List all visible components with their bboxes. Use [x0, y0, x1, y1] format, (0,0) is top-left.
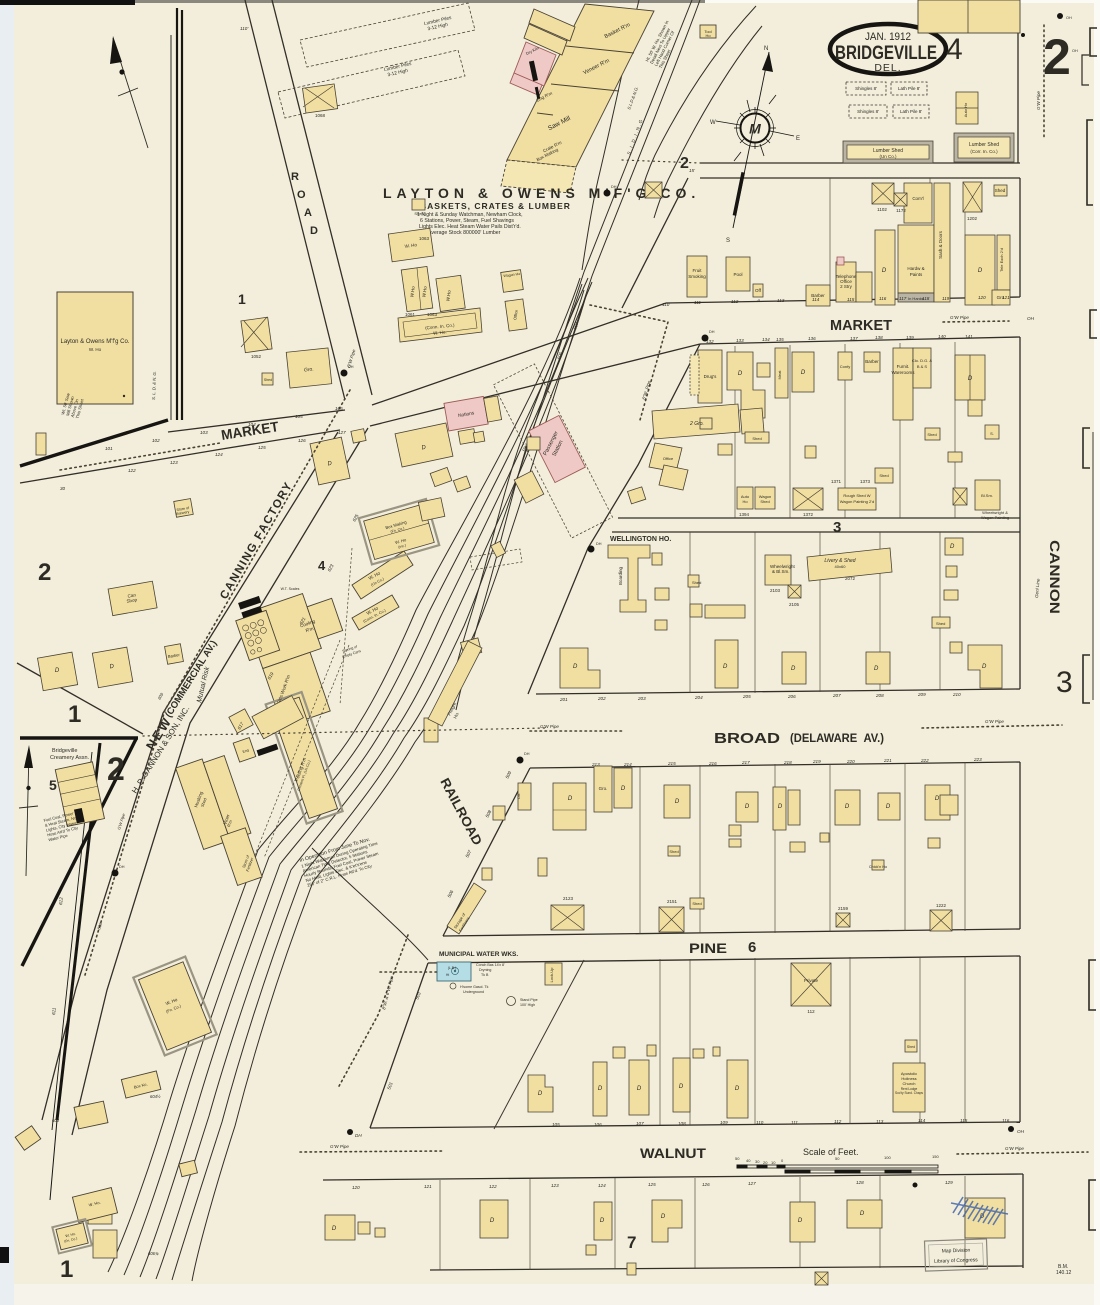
svg-text:107: 107	[636, 1121, 644, 1126]
svg-text:(Un Co.): (Un Co.)	[879, 154, 897, 159]
svg-text:138: 138	[875, 335, 883, 340]
svg-text:136: 136	[808, 336, 816, 341]
svg-text:BROAD: BROAD	[714, 730, 780, 747]
svg-text:Lath Pile 8': Lath Pile 8'	[900, 109, 922, 114]
svg-text:124: 124	[215, 452, 223, 457]
svg-text:D: D	[791, 666, 796, 672]
svg-text:Sash & Doors: Sash & Doors	[938, 230, 943, 259]
svg-text:D: D	[723, 664, 728, 670]
svg-text:105: 105	[295, 414, 303, 419]
svg-text:BRIDGEVILLE: BRIDGEVILLE	[835, 43, 937, 64]
svg-text:Shingles 8': Shingles 8'	[855, 86, 877, 91]
svg-text:15': 15'	[689, 168, 695, 173]
svg-text:OH: OH	[1017, 1129, 1025, 1134]
svg-text:4: 4	[318, 558, 326, 573]
svg-text:Hardw &: Hardw &	[907, 266, 924, 271]
svg-text:2159: 2159	[838, 906, 849, 911]
svg-text:40x60: 40x60	[835, 564, 847, 569]
svg-text:116: 116	[879, 296, 887, 301]
svg-text:BASKETS, CRATES & LUMBER: BASKETS, CRATES & LUMBER	[420, 201, 571, 211]
svg-text:D: D	[978, 268, 983, 274]
svg-text:6: 6	[748, 939, 756, 956]
svg-text:112: 112	[807, 1009, 815, 1014]
svg-text:1222: 1222	[936, 903, 947, 908]
svg-text:Lath Pile 8': Lath Pile 8'	[898, 86, 920, 91]
svg-text:202: 202	[597, 696, 606, 701]
svg-text:220: 220	[846, 759, 855, 764]
svg-text:Wagon Painting: Wagon Painting	[981, 515, 1009, 520]
svg-text:128: 128	[856, 1180, 864, 1185]
svg-text:132: 132	[706, 339, 714, 344]
svg-text:DH: DH	[348, 365, 354, 369]
svg-text:M: M	[749, 121, 761, 137]
svg-text:A: A	[304, 207, 312, 219]
svg-text:2 Gro.: 2 Gro.	[689, 421, 704, 427]
svg-text:Rough Shed W: Rough Shed W	[843, 493, 870, 498]
svg-text:123: 123	[551, 1183, 559, 1188]
svg-text:115: 115	[847, 297, 855, 302]
svg-text:D: D	[600, 1218, 605, 1224]
svg-text:OH: OH	[1072, 49, 1078, 53]
svg-text:S.: S.	[990, 431, 994, 436]
svg-text:G'W Pipe: G'W Pipe	[950, 315, 969, 320]
svg-text:217: 217	[741, 760, 750, 765]
svg-text:D: D	[968, 376, 973, 382]
svg-text:Shed: Shed	[669, 849, 678, 854]
svg-text:OH: OH	[1027, 316, 1035, 321]
svg-text:D: D	[568, 796, 573, 802]
svg-text:207: 207	[832, 693, 841, 698]
svg-text:109: 109	[720, 1120, 728, 1125]
svg-text:105: 105	[552, 1122, 560, 1127]
svg-text:D: D	[745, 804, 750, 810]
svg-text:Clo. D.G. &: Clo. D.G. &	[912, 358, 933, 363]
svg-text:125: 125	[258, 445, 266, 450]
svg-text:126: 126	[298, 438, 306, 443]
svg-text:S. L. D. & N. G.: S. L. D. & N. G.	[151, 371, 157, 400]
svg-text:115: 115	[960, 1118, 968, 1123]
svg-text:D: D	[637, 1086, 642, 1092]
svg-text:W. Ho: W. Ho	[89, 347, 102, 352]
svg-text:10: 10	[771, 1160, 776, 1165]
svg-text:WELLINGTON HO.: WELLINGTON HO.	[610, 536, 671, 543]
svg-text:Layton & Owens M'f'g Co.: Layton & Owens M'f'g Co.	[61, 339, 130, 345]
svg-text:120: 120	[978, 295, 986, 300]
svg-text:133: 133	[736, 338, 744, 343]
svg-text:S: S	[726, 238, 730, 244]
svg-text:Confy: Confy	[840, 364, 850, 369]
svg-text:Shingles 8': Shingles 8'	[857, 109, 879, 114]
svg-text:139: 139	[906, 335, 914, 340]
svg-text:204: 204	[694, 695, 703, 700]
svg-text:D: D	[845, 804, 850, 810]
svg-text:Meat: Meat	[777, 370, 782, 380]
svg-text:Conch Bas 14'x 8': Conch Bas 14'x 8'	[476, 963, 505, 967]
svg-text:OH: OH	[1066, 16, 1072, 20]
svg-text:Shed: Shed	[907, 1045, 915, 1049]
svg-text:3: 3	[1056, 666, 1073, 699]
svg-text:1371: 1371	[831, 479, 842, 484]
svg-text:30: 30	[60, 486, 66, 491]
svg-text:Stand Pipe: Stand Pipe	[520, 998, 538, 1002]
svg-text:1068: 1068	[315, 113, 326, 118]
svg-text:140: 140	[938, 334, 946, 339]
svg-text:2103: 2103	[770, 588, 781, 593]
svg-text:135: 135	[776, 337, 784, 342]
svg-text:1063: 1063	[419, 236, 430, 241]
svg-text:1202: 1202	[967, 216, 978, 221]
svg-text:1063: 1063	[427, 312, 438, 317]
svg-text:D: D	[950, 544, 955, 550]
svg-text:D: D	[490, 1218, 495, 1224]
svg-text:G'W Pipe: G'W Pipe	[1036, 91, 1041, 110]
svg-text:Church: Church	[903, 1081, 916, 1086]
svg-text:121: 121	[424, 1184, 432, 1189]
svg-text:126: 126	[702, 1182, 710, 1187]
svg-text:110: 110	[756, 1120, 764, 1125]
svg-text:Com'l: Com'l	[912, 196, 923, 201]
svg-text:Bl.Sm.: Bl.Sm.	[981, 493, 993, 498]
svg-text:Ho: Ho	[742, 499, 748, 504]
svg-text:Underground: Underground	[463, 990, 484, 994]
svg-text:112: 112	[834, 1119, 842, 1124]
svg-text:Gro.: Gro.	[599, 786, 608, 791]
svg-text:D: D	[798, 1218, 803, 1224]
svg-text:222: 222	[920, 758, 929, 763]
svg-text:219: 219	[812, 759, 821, 764]
svg-text:106: 106	[594, 1122, 602, 1127]
svg-text:121: 121	[1002, 295, 1010, 300]
svg-text:1373: 1373	[860, 479, 871, 484]
svg-text:Shed: Shed	[692, 580, 701, 585]
svg-text:D: D	[55, 668, 60, 674]
svg-text:102: 102	[152, 438, 160, 443]
svg-text:D: D	[801, 370, 806, 376]
svg-text:H'some Gasol. Tk: H'some Gasol. Tk	[460, 985, 489, 989]
svg-text:CANNON: CANNON	[1047, 540, 1063, 614]
svg-text:218: 218	[783, 760, 792, 765]
svg-text:Shed: Shed	[264, 378, 272, 382]
svg-text:205: 205	[742, 694, 751, 699]
svg-text:Tk B: Tk B	[481, 973, 489, 977]
svg-text:D: D	[310, 225, 318, 237]
svg-text:Creamery Assn.: Creamery Assn.	[50, 755, 90, 761]
svg-text:D: D	[679, 1084, 684, 1090]
svg-text:Shed: Shed	[936, 621, 945, 626]
svg-text:116: 116	[1002, 1118, 1010, 1123]
svg-text:Shed: Shed	[995, 188, 1006, 193]
svg-text:2: 2	[38, 559, 51, 586]
svg-text:101: 101	[105, 446, 113, 451]
svg-text:117: 117	[899, 296, 907, 301]
svg-text:50: 50	[735, 1156, 740, 1161]
svg-text:G'W Pipe: G'W Pipe	[1005, 1146, 1024, 1151]
svg-text:1372: 1372	[803, 512, 814, 517]
svg-text:D: D	[735, 1086, 740, 1092]
svg-text:(Corr. In. Co.): (Corr. In. Co.)	[970, 149, 998, 154]
svg-text:122: 122	[128, 468, 136, 473]
svg-text:100: 100	[884, 1155, 891, 1160]
svg-text:MUNICIPAL WATER WKS.: MUNICIPAL WATER WKS.	[439, 951, 518, 958]
svg-text:Furnit.: Furnit.	[897, 364, 910, 369]
svg-text:PINE: PINE	[689, 940, 727, 956]
svg-text:124: 124	[598, 1183, 606, 1188]
svg-text:Soc'ty Sund. Chaps: Soc'ty Sund. Chaps	[895, 1091, 923, 1095]
svg-text:604½: 604½	[150, 1094, 161, 1099]
svg-text:50: 50	[835, 1156, 840, 1161]
svg-text:Ho: Ho	[705, 33, 711, 38]
svg-text:Off: Off	[755, 288, 762, 293]
svg-text:2105: 2105	[789, 602, 800, 607]
svg-text:141: 141	[965, 334, 973, 339]
svg-text:W.T. Scales: W.T. Scales	[281, 587, 300, 591]
svg-text:600: 600	[52, 1118, 60, 1123]
svg-text:111: 111	[791, 1120, 798, 1125]
svg-text:D: D	[332, 1226, 337, 1232]
svg-text:3: 3	[833, 519, 841, 536]
svg-text:40: 40	[746, 1158, 751, 1163]
svg-text:2 Stry: 2 Stry	[840, 284, 853, 289]
svg-text:103: 103	[200, 430, 208, 435]
svg-text:108: 108	[678, 1121, 686, 1126]
svg-text:206: 206	[787, 694, 796, 699]
svg-text:140.12: 140.12	[1056, 1270, 1072, 1276]
svg-text:D: D	[573, 664, 578, 670]
svg-text:DH: DH	[119, 865, 125, 869]
svg-text:Barber: Barber	[865, 359, 879, 364]
svg-text:612: 612	[58, 897, 64, 906]
svg-text:DH: DH	[355, 1133, 362, 1138]
svg-text:201: 201	[559, 697, 568, 702]
svg-text:127: 127	[338, 430, 346, 435]
svg-text:111: 111	[694, 300, 701, 305]
svg-text:Lock-Up: Lock-Up	[549, 967, 554, 983]
svg-text:Bridgeville: Bridgeville	[52, 748, 77, 754]
svg-text:Scale of Feet.: Scale of Feet.	[803, 1147, 859, 1157]
svg-text:(L.B.): (L.B.)	[448, 966, 457, 970]
svg-text:D: D	[738, 371, 743, 377]
svg-text:MARKET: MARKET	[830, 318, 892, 334]
svg-text:D: D	[935, 796, 940, 802]
svg-text:Paints: Paints	[910, 272, 923, 277]
svg-text:DEL.: DEL.	[874, 62, 901, 74]
svg-text:221: 221	[883, 758, 892, 763]
svg-text:Shed: Shed	[752, 436, 761, 441]
svg-text:Shed: Shed	[927, 432, 936, 437]
svg-text:104: 104	[248, 422, 256, 427]
svg-text:110': 110'	[240, 26, 248, 31]
svg-text:(DELAWARE AV.): (DELAWARE AV.)	[790, 733, 884, 745]
svg-text:D: D	[661, 1214, 666, 1220]
svg-text:A: A	[756, 298, 760, 303]
svg-text:118: 118	[922, 296, 930, 301]
svg-text:114: 114	[918, 1118, 926, 1123]
svg-text:Chick'n Ho: Chick'n Ho	[869, 865, 887, 869]
svg-text:114: 114	[812, 297, 820, 302]
svg-text:1061: 1061	[405, 312, 416, 317]
svg-text:127: 127	[748, 1181, 756, 1186]
svg-text:Lumber Shed: Lumber Shed	[969, 142, 999, 148]
svg-text:D: D	[882, 268, 887, 274]
svg-text:134: 134	[762, 337, 770, 342]
svg-text:606¾: 606¾	[148, 1251, 159, 1256]
svg-text:2151: 2151	[667, 899, 678, 904]
svg-text:Shed: Shed	[692, 901, 701, 906]
svg-text:20: 20	[763, 1160, 768, 1165]
svg-text:150: 150	[932, 1154, 939, 1159]
svg-text:209: 209	[917, 692, 926, 697]
svg-text:D: D	[675, 799, 680, 805]
svg-text:5: 5	[49, 777, 57, 793]
svg-text:214: 214	[623, 762, 632, 767]
svg-text:208: 208	[875, 693, 884, 698]
svg-text:D: D	[598, 1086, 603, 1092]
svg-text:Average Stock 800000' Lumber: Average Stock 800000' Lumber	[428, 230, 501, 236]
svg-text:Boarding: Boarding	[618, 566, 623, 585]
svg-text:Off.: Off.	[516, 793, 521, 799]
svg-text:D: D	[621, 786, 626, 792]
svg-text:213: 213	[591, 762, 600, 767]
svg-text:Ht: Ht	[446, 973, 449, 977]
svg-text:N: N	[764, 46, 768, 52]
svg-text:2: 2	[1043, 29, 1071, 85]
svg-text:JAN. 1912: JAN. 1912	[865, 31, 911, 43]
svg-text:D: D	[982, 664, 987, 670]
svg-text:Auto Ho: Auto Ho	[963, 102, 968, 117]
svg-text:1: 1	[238, 291, 246, 307]
svg-text:Pool: Pool	[733, 272, 742, 277]
svg-text:Tele Exch 2'd: Tele Exch 2'd	[999, 248, 1004, 272]
svg-text:2: 2	[107, 751, 125, 787]
svg-text:113: 113	[777, 298, 785, 303]
svg-text:Private: Private	[804, 978, 819, 983]
svg-text:1394: 1394	[739, 512, 750, 517]
svg-text:Shed: Shed	[879, 473, 888, 478]
svg-text:G'W Pipe: G'W Pipe	[330, 1144, 349, 1149]
svg-text:Gro.: Gro.	[304, 367, 314, 374]
svg-text:DH: DH	[709, 330, 715, 334]
svg-text:E: E	[796, 136, 800, 142]
svg-text:129: 129	[945, 1180, 953, 1185]
svg-text:1102: 1102	[877, 207, 887, 212]
svg-text:215: 215	[667, 761, 676, 766]
svg-text:Fruit: Fruit	[693, 268, 703, 273]
svg-text:100' High: 100' High	[520, 1003, 535, 1007]
svg-text:Dryning: Dryning	[479, 968, 491, 972]
svg-text:210: 210	[952, 692, 961, 697]
svg-text:B & S: B & S	[917, 364, 928, 369]
svg-text:123: 123	[170, 460, 178, 465]
svg-text:D: D	[778, 804, 783, 810]
svg-text:2072: 2072	[845, 576, 856, 581]
svg-text:Office: Office	[663, 456, 674, 461]
svg-text:223: 223	[973, 757, 982, 762]
svg-text:D: D	[886, 804, 891, 810]
svg-text:G'W Pipe: G'W Pipe	[540, 724, 559, 729]
svg-text:137: 137	[850, 336, 858, 341]
svg-text:Shed: Shed	[760, 499, 769, 504]
svg-text:O: O	[297, 189, 306, 201]
svg-text:125: 125	[648, 1182, 656, 1187]
svg-text:119: 119	[942, 296, 950, 301]
svg-text:122: 122	[489, 1184, 497, 1189]
svg-text:113: 113	[876, 1119, 884, 1124]
svg-text:30: 30	[755, 1159, 760, 1164]
svg-text:D: D	[860, 1211, 865, 1217]
svg-text:Shed: Shed	[414, 211, 423, 216]
svg-text:Drug's: Drug's	[704, 374, 718, 379]
svg-text:DH: DH	[596, 542, 602, 546]
svg-text:DH: DH	[611, 185, 617, 189]
svg-text:4: 4	[946, 33, 963, 66]
svg-text:110: 110	[662, 302, 670, 307]
svg-text:1172: 1172	[896, 208, 906, 213]
svg-text:1: 1	[60, 1256, 73, 1283]
svg-text:1: 1	[68, 701, 81, 728]
svg-text:203: 203	[637, 696, 646, 701]
svg-text:R: R	[291, 171, 299, 183]
svg-text:DH: DH	[524, 752, 530, 756]
svg-text:G'W Pipe: G'W Pipe	[985, 719, 1004, 724]
svg-text:216: 216	[708, 761, 717, 766]
svg-text:& Bl.Sm.: & Bl.Sm.	[772, 569, 790, 574]
svg-text:Warerooms: Warerooms	[891, 370, 915, 375]
svg-text:WALNUT: WALNUT	[640, 1145, 706, 1161]
svg-text:611: 611	[51, 1007, 57, 1015]
svg-text:D: D	[874, 666, 879, 672]
svg-text:112: 112	[731, 299, 739, 304]
svg-text:2123: 2123	[563, 896, 574, 901]
svg-text:Wagon Painting 2'd: Wagon Painting 2'd	[840, 499, 874, 504]
svg-text:W: W	[710, 120, 716, 126]
svg-text:D: D	[538, 1091, 543, 1097]
svg-text:Smoking: Smoking	[688, 274, 706, 279]
svg-text:7: 7	[627, 1233, 636, 1252]
svg-text:120: 120	[352, 1185, 360, 1190]
svg-text:1052: 1052	[251, 354, 262, 359]
svg-text:Map Division: Map Division	[942, 1247, 971, 1254]
svg-text:106: 106	[335, 406, 343, 411]
svg-text:2: 2	[680, 155, 689, 172]
